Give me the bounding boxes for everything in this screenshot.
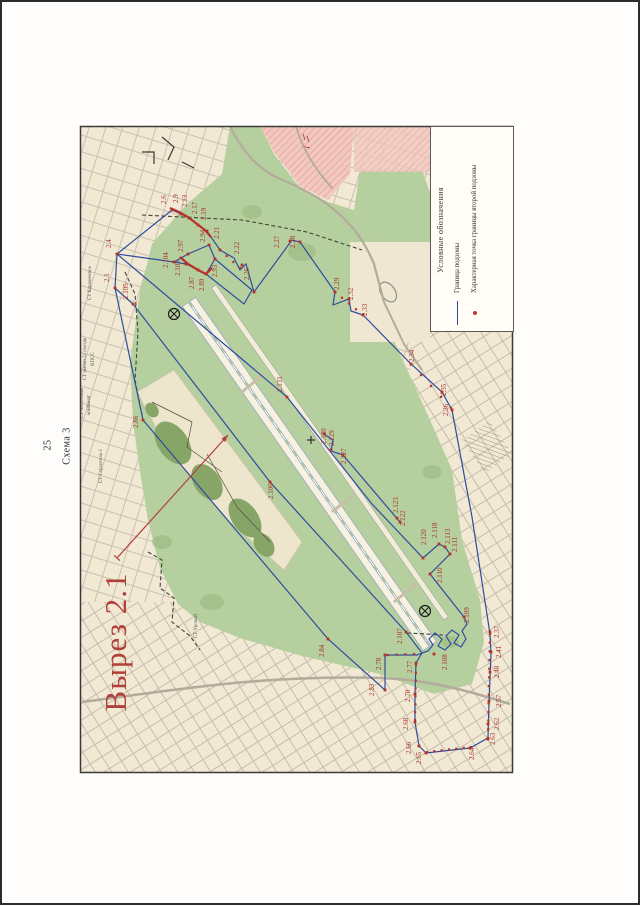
boundary-dot: [414, 687, 416, 689]
characteristic-point: [219, 249, 222, 252]
boundary-dot: [420, 374, 422, 376]
characteristic-point: [142, 419, 145, 422]
boundary-dot: [463, 747, 465, 749]
point-label: 2.120: [420, 529, 428, 545]
point-label: 2.68: [402, 717, 410, 730]
boundary-dot: [232, 261, 234, 263]
point-label: 2.19: [200, 207, 208, 220]
point-label: 2.27: [273, 235, 281, 248]
characteristic-point: [384, 654, 387, 657]
point-label: 2.66: [405, 741, 413, 754]
characteristic-point: [487, 723, 490, 726]
characteristic-point: [214, 258, 217, 261]
characteristic-point: [425, 752, 428, 755]
characteristic-point: [490, 651, 493, 654]
point-label: 2.129: [328, 430, 336, 446]
characteristic-point: [171, 209, 174, 212]
boundary-dot: [414, 711, 416, 713]
point-label: 2.36: [442, 403, 450, 416]
characteristic-point: [330, 449, 333, 452]
characteristic-point: [205, 273, 208, 276]
point-label: 2.32: [347, 287, 355, 300]
boundary-dot: [430, 385, 432, 387]
legend-item-boundary: Граница подзоны: [454, 127, 462, 332]
characteristic-point: [449, 553, 452, 556]
scanned-page: 2.12.42.62.92.132.172.192.212.222.262.27…: [0, 0, 640, 905]
characteristic-point: [433, 653, 436, 656]
characteristic-point: [197, 224, 200, 227]
point-label: 2.97: [177, 239, 185, 252]
characteristic-point: [438, 543, 441, 546]
area-label: СТ Урожай: [194, 614, 199, 638]
point-label: 2.70: [404, 689, 412, 702]
area-label: комбинат: [87, 394, 92, 415]
boundary-dot: [488, 659, 490, 661]
characteristic-point: [488, 700, 491, 703]
point-label: 2.29: [333, 277, 341, 290]
legend-title: Условные обозначения: [436, 127, 445, 332]
legend-item-point: Характерная точка границы второй подзоны: [471, 127, 479, 332]
boundary-dot: [239, 267, 241, 269]
point-label: 2.94: [199, 229, 207, 242]
boundary-dot: [396, 654, 398, 656]
point-label: 2.84: [318, 644, 326, 657]
point-label: 2.87: [188, 276, 196, 289]
characteristic-point: [327, 638, 330, 641]
scheme-title: Схема 3: [62, 427, 73, 465]
point-label: 2.107: [396, 628, 404, 644]
boundary-dot: [487, 720, 489, 722]
point-label: 2.93: [211, 264, 219, 277]
boundary-dot: [488, 668, 490, 670]
area-label: КПСС: [91, 352, 96, 366]
characteristic-point: [418, 745, 421, 748]
characteristic-point: [132, 303, 135, 306]
characteristic-point: [116, 253, 119, 256]
characteristic-point: [422, 557, 425, 560]
characteristic-point: [299, 241, 302, 244]
point-label: 2.62: [493, 717, 501, 730]
boundary-dot: [404, 653, 406, 655]
point-label: 2.86: [132, 415, 140, 428]
point-label: 2.127: [340, 448, 348, 464]
boundary-dot: [387, 654, 389, 656]
characteristic-point: [185, 263, 188, 266]
point-label: 2.64: [468, 747, 476, 760]
boundary-dot: [488, 702, 490, 704]
characteristic-point: [253, 291, 256, 294]
boundary-dot: [441, 749, 443, 751]
point-label: 2.4: [105, 239, 113, 248]
point-label: 2.65: [415, 751, 423, 764]
point-label: 2.104: [162, 252, 170, 268]
map-canvas: 2.12.42.62.92.132.172.192.212.222.262.27…: [2, 2, 640, 907]
point-label: 2.89: [198, 278, 206, 291]
characteristic-point: [286, 396, 289, 399]
point-label: 2.131: [276, 376, 284, 392]
point-label: 2.109: [463, 607, 471, 623]
boundary-dot: [355, 308, 357, 310]
characteristic-point: [405, 631, 408, 634]
point-label: 2.26: [243, 267, 251, 280]
characteristic-point: [269, 481, 272, 484]
point-label: 2.21: [213, 226, 221, 239]
boundary-dot: [489, 642, 491, 644]
area-label: СТ Строитель-1: [99, 448, 104, 483]
point-label: 2.123: [392, 497, 400, 513]
characteristic-point: [444, 546, 447, 549]
boundary-dot: [455, 748, 457, 750]
characteristic-point: [429, 573, 432, 576]
point-label: 2.130: [320, 428, 328, 444]
characteristic-point: [396, 517, 399, 520]
point-label: 2.118: [431, 522, 439, 538]
boundary-dot: [414, 703, 416, 705]
point-label: 2.63: [489, 732, 497, 745]
boundary-dot: [488, 685, 490, 687]
area-label: СТ Карачевское: [88, 265, 93, 300]
point-label: 2.48: [493, 665, 501, 678]
characteristic-point: [173, 261, 176, 264]
point-label: 2.6: [160, 195, 168, 204]
point-label: 2.113: [444, 528, 452, 544]
point-label: 2.22: [233, 241, 241, 254]
boundary-dot: [415, 672, 417, 674]
point-label: 2.34: [408, 349, 416, 362]
characteristic-point: [114, 287, 117, 290]
legend-item-label: Характерная точка границы второй подзоны: [471, 143, 479, 293]
point-label: 2.110: [436, 567, 444, 583]
characteristic-point: [489, 631, 492, 634]
stadium-area: [350, 242, 430, 342]
point-label: 2.33: [361, 303, 369, 316]
area-label: СТ имени 21 съезда: [83, 337, 88, 380]
boundary-dot: [433, 750, 435, 752]
point-label: 2.77: [406, 660, 414, 673]
point-label: 2.28: [289, 235, 297, 248]
boundary-dot: [448, 748, 450, 750]
point-label: 2.13: [181, 194, 189, 207]
boundary-dot: [415, 680, 417, 682]
characteristic-point: [197, 269, 200, 272]
characteristic-point: [334, 291, 337, 294]
characteristic-point: [180, 213, 183, 216]
point-label: 2.78: [375, 657, 383, 670]
point-label: 2.105: [122, 283, 130, 299]
point-label: 2.111: [451, 536, 459, 552]
characteristic-point: [384, 689, 387, 692]
point-label: 2.1: [103, 273, 111, 282]
boundary-line-symbol: [457, 301, 458, 325]
boundary-dot: [226, 255, 228, 257]
point-label: 2.17: [191, 201, 199, 214]
point-label: 2.41: [495, 645, 503, 658]
characteristic-point: [241, 264, 244, 267]
point-label: 2.122: [399, 510, 407, 526]
boundary-dot: [488, 676, 490, 678]
characteristic-point: [410, 363, 413, 366]
boundary-dot: [413, 653, 415, 655]
point-label: 2.9: [172, 194, 180, 203]
characteristic-point: [208, 244, 211, 247]
boundary-dot: [414, 695, 416, 697]
point-label: 2.83: [368, 683, 376, 696]
point-label: 2.106: [267, 483, 275, 499]
characteristic-point: [415, 662, 418, 665]
characteristic-point: [414, 721, 417, 724]
page-number: 25: [43, 440, 54, 451]
legend-box: Условные обозначения Граница подзоны Хар…: [430, 126, 514, 332]
characteristic-point: [187, 253, 190, 256]
characteristic-point: [489, 671, 492, 674]
characteristic-point: [451, 409, 454, 412]
characteristic-point: [414, 693, 417, 696]
cutout-title: Вырез 2.1: [98, 573, 134, 712]
point-label: 2.35: [440, 383, 448, 396]
point-label: 2.57: [495, 694, 503, 707]
point-label: 2.108: [441, 654, 449, 670]
boundary-dot: [488, 694, 490, 696]
characteristic-point-symbol: [473, 311, 477, 315]
point-label: 2.37: [493, 625, 501, 638]
characteristic-point: [188, 217, 191, 220]
boundary-dot: [348, 302, 350, 304]
boundary-dot: [341, 297, 343, 299]
legend-item-label: Граница подзоны: [454, 143, 462, 293]
boundary-dot: [487, 728, 489, 730]
boundary-dot: [487, 711, 489, 713]
